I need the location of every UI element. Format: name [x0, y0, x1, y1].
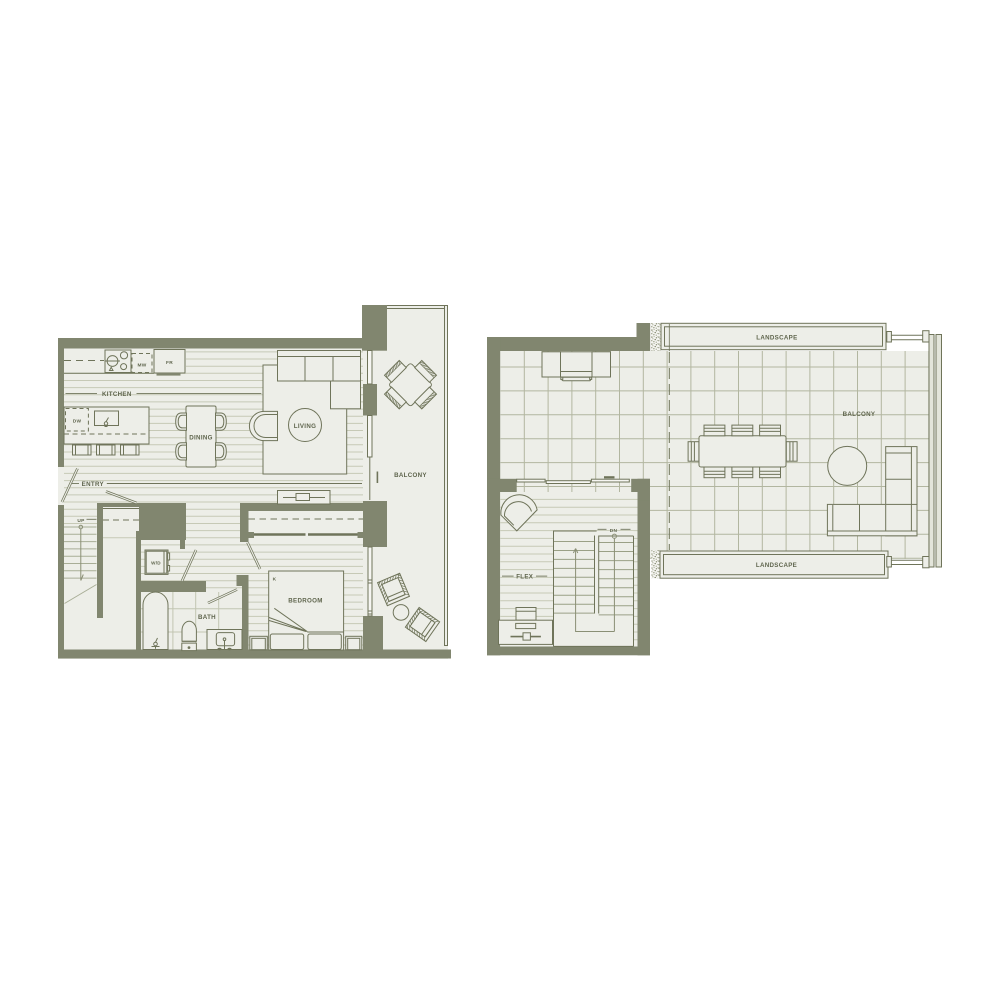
svg-text:DW: DW	[73, 419, 82, 425]
svg-text:FR: FR	[166, 360, 173, 366]
svg-text:W/D: W/D	[151, 560, 161, 565]
svg-text:ENTRY: ENTRY	[82, 481, 105, 488]
svg-text:LANDSCAPE: LANDSCAPE	[756, 335, 797, 342]
svg-text:BEDROOM: BEDROOM	[288, 598, 322, 605]
svg-text:LANDSCAPE: LANDSCAPE	[756, 562, 797, 569]
svg-text:UP: UP	[77, 518, 85, 524]
svg-text:DN: DN	[610, 528, 618, 534]
svg-text:BATH: BATH	[198, 614, 216, 621]
svg-text:MW: MW	[137, 363, 146, 369]
svg-text:DINING: DINING	[189, 435, 212, 442]
svg-text:FLEX: FLEX	[516, 574, 534, 581]
svg-text:BALCONY: BALCONY	[394, 472, 427, 479]
svg-text:LIVING: LIVING	[294, 423, 316, 430]
svg-text:BALCONY: BALCONY	[843, 411, 876, 418]
svg-text:K: K	[273, 577, 277, 583]
svg-text:KITCHEN: KITCHEN	[102, 391, 132, 398]
